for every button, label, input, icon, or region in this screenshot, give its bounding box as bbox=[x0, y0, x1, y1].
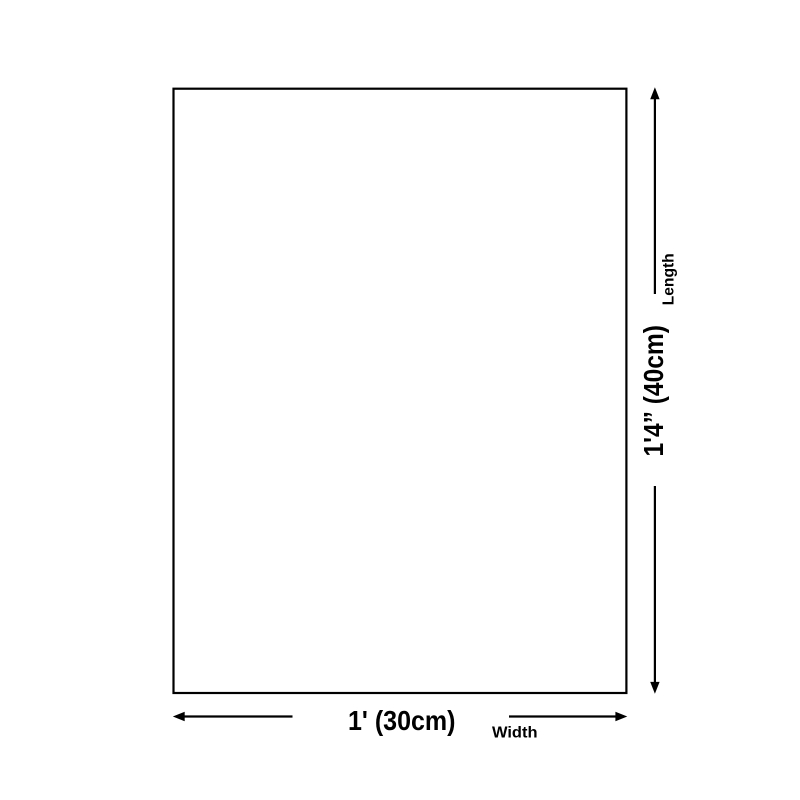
svg-text:Width: Width bbox=[492, 725, 538, 742]
svg-text:Length: Length bbox=[661, 253, 678, 305]
svg-text:1' (30cm): 1' (30cm) bbox=[348, 705, 456, 736]
svg-text:1'4” (40cm): 1'4” (40cm) bbox=[638, 325, 669, 457]
